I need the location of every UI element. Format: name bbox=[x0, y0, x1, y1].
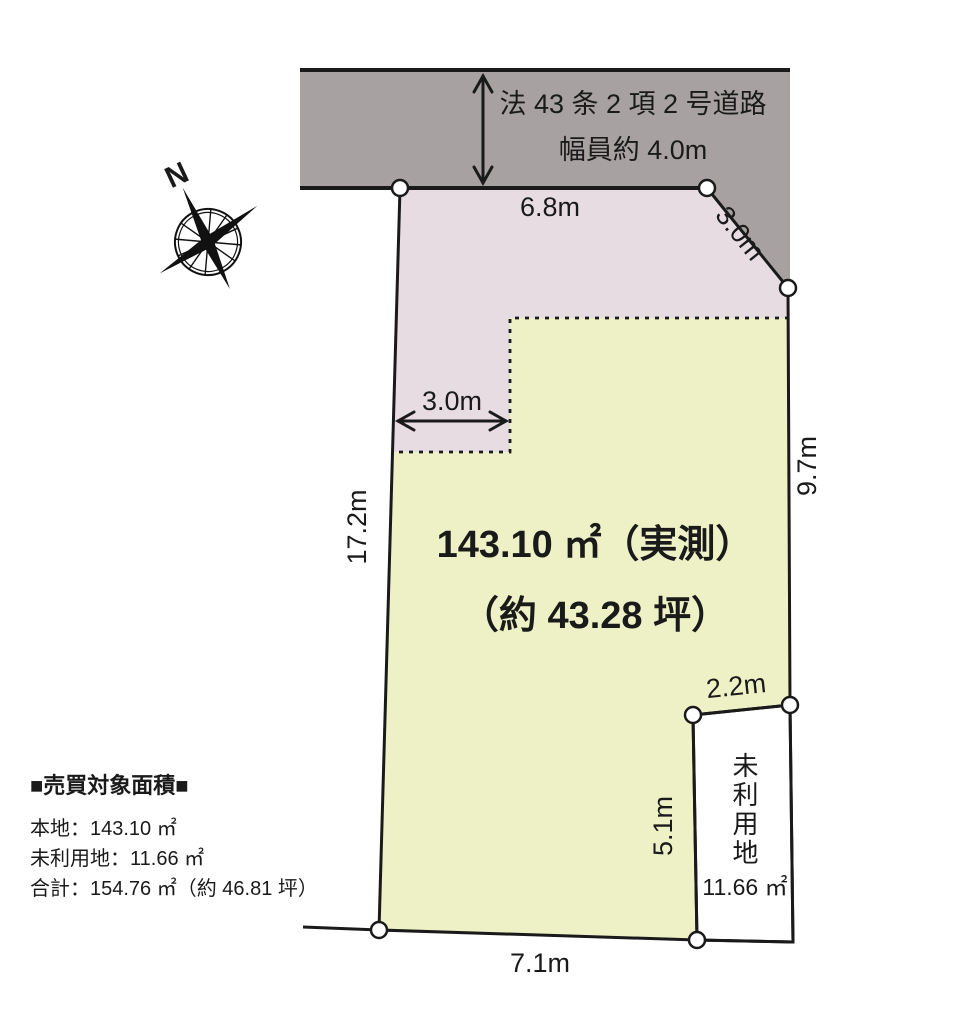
dim-left-side: 17.2m bbox=[342, 489, 372, 564]
vertex-marker bbox=[685, 707, 701, 723]
road-width-label: 幅員約 4.0m bbox=[559, 135, 708, 165]
plot-area-label-line2: （約 43.28 坪） bbox=[461, 595, 729, 637]
vertex-marker bbox=[699, 180, 715, 196]
legend-title: ■売買対象面積■ bbox=[30, 768, 318, 800]
unused-lot-label: 未利用地 bbox=[726, 752, 763, 868]
compass-rose: N bbox=[118, 135, 284, 313]
boundary-extension-line bbox=[303, 927, 379, 930]
vertex-marker bbox=[371, 922, 387, 938]
dim-road-frontage: 6.8m bbox=[520, 192, 580, 222]
dim-right-side: 9.7m bbox=[792, 436, 822, 496]
legend-line-total: 合計：154.76 ㎡（約 46.81 坪） bbox=[30, 874, 318, 904]
plot-area-label-line1: 143.10 ㎡（実測） bbox=[437, 523, 754, 566]
dim-bottom: 7.1m bbox=[510, 948, 570, 978]
vertex-marker bbox=[780, 280, 796, 296]
compass-north-label: N bbox=[160, 156, 194, 195]
vertex-marker bbox=[392, 180, 408, 196]
vertex-marker bbox=[782, 697, 798, 713]
dim-unused-left: 5.1m bbox=[648, 796, 678, 856]
dim-setback-width: 3.0m bbox=[422, 386, 482, 416]
dim-unused-top: 2.2m bbox=[705, 668, 768, 704]
legend-line-unused-lot: 未利用地：11.66 ㎡ bbox=[30, 844, 318, 874]
legend: ■売買対象面積■ 本地：143.10 ㎡ 未利用地：11.66 ㎡ 合計：154… bbox=[30, 768, 318, 904]
unused-lot-area-value: 11.66 ㎡ bbox=[695, 868, 795, 902]
vertex-marker bbox=[689, 932, 705, 948]
legend-line-main-lot: 本地：143.10 ㎡ bbox=[30, 814, 318, 844]
land-plot-diagram: N 法 43 条 2 項 2 号道路 幅員約 4.0m 6.8m 3.0m 3.… bbox=[0, 0, 977, 1024]
road-name-label: 法 43 条 2 項 2 号道路 bbox=[499, 89, 766, 119]
